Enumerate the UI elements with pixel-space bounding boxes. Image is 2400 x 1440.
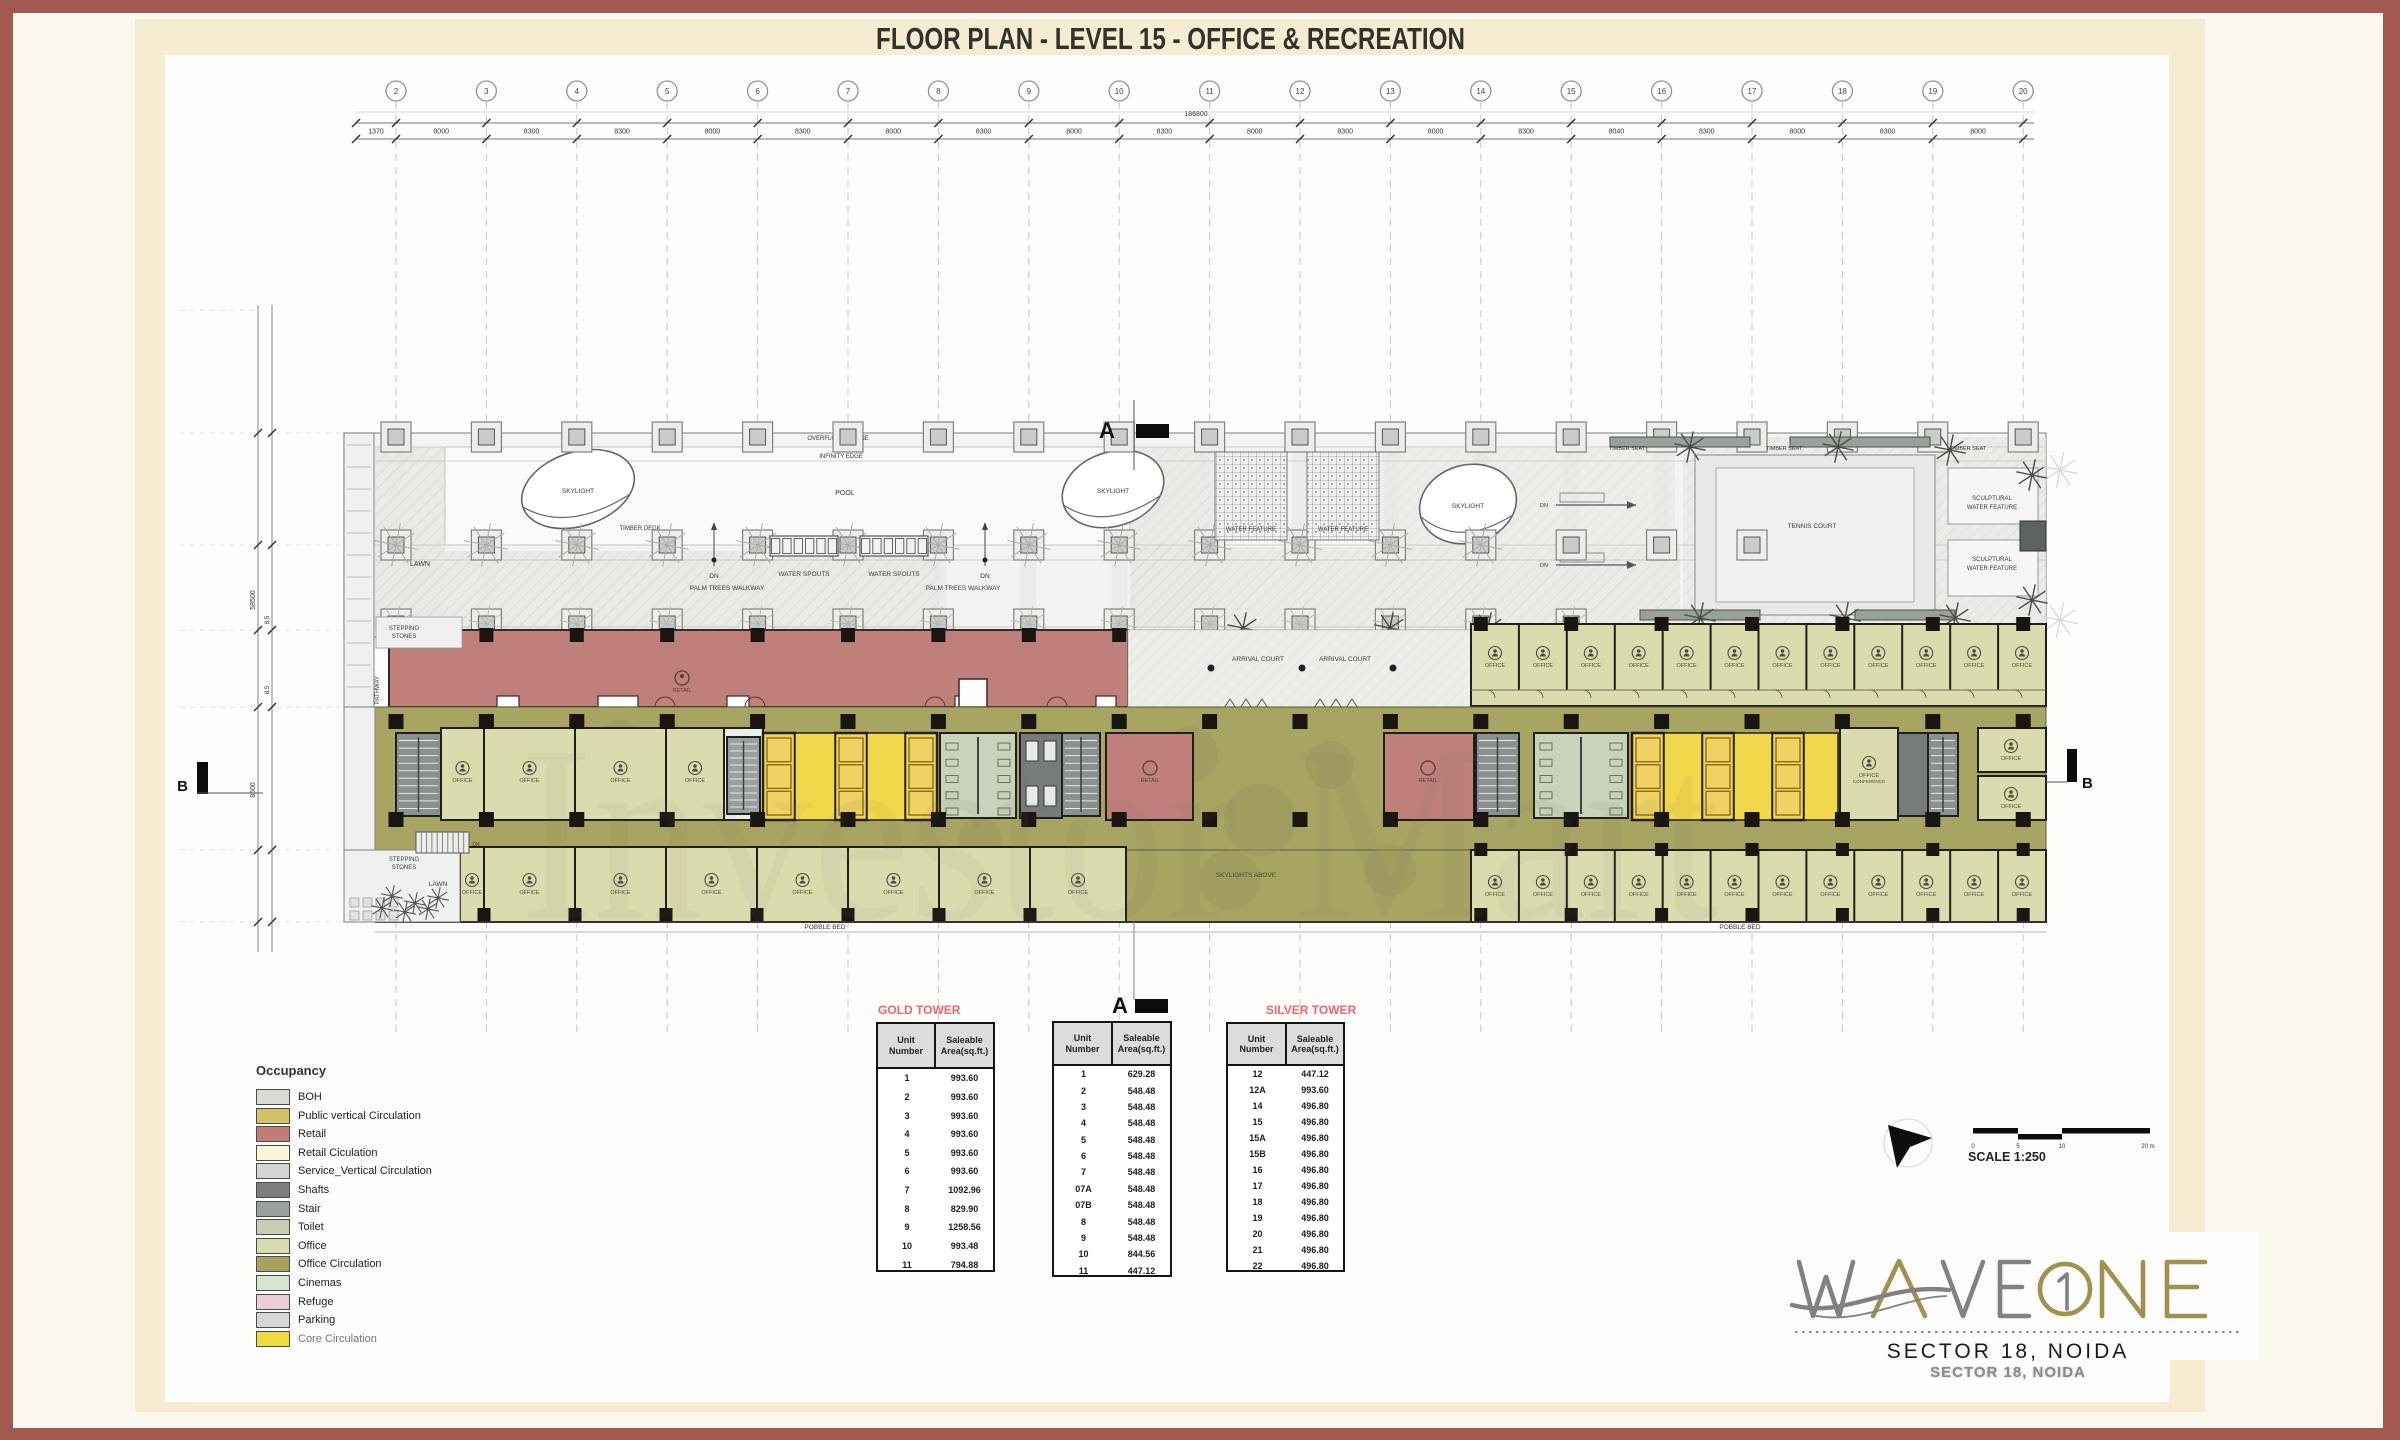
svg-text:2: 2 (394, 87, 399, 96)
svg-text:SCULPTURAL: SCULPTURAL (1972, 557, 2012, 563)
svg-text:OFFICE: OFFICE (1772, 663, 1792, 669)
svg-text:STEPPING: STEPPING (389, 857, 420, 863)
svg-text:OFFICE: OFFICE (1772, 892, 1792, 898)
svg-text:Investor Mart: Investor Mart (520, 693, 1720, 973)
svg-text:OFFICE: OFFICE (1916, 892, 1936, 898)
svg-text:OFFICE: OFFICE (1533, 663, 1553, 669)
svg-text:10: 10 (1115, 87, 1124, 96)
svg-text:SKYLIGHT: SKYLIGHT (1452, 503, 1484, 510)
svg-text:8000: 8000 (1066, 129, 1082, 136)
svg-text:OFFICE: OFFICE (1485, 663, 1505, 669)
svg-text:8300: 8300 (1157, 129, 1173, 136)
svg-text:PALM TREES WALKWAY: PALM TREES WALKWAY (690, 585, 765, 592)
svg-text:OFFICE: OFFICE (1677, 663, 1697, 669)
svg-text:8000: 8000 (433, 129, 449, 136)
svg-text:STEPPING: STEPPING (389, 626, 420, 632)
svg-text:8300: 8300 (1337, 129, 1353, 136)
svg-text:8000: 8000 (1970, 129, 1986, 136)
svg-text:TIMBER SEAT: TIMBER SEAT (1766, 446, 1803, 452)
svg-text:DN: DN (1540, 563, 1548, 569)
svg-text:OFFICE: OFFICE (1724, 892, 1744, 898)
svg-text:B: B (177, 778, 188, 795)
svg-text:10: 10 (2059, 1144, 2066, 1150)
svg-text:PALM TREES WALKWAY: PALM TREES WALKWAY (926, 585, 1001, 592)
svg-text:POOL: POOL (835, 490, 855, 497)
svg-text:8300: 8300 (614, 129, 630, 136)
svg-text:TIMBER SEAT: TIMBER SEAT (1609, 446, 1646, 452)
svg-text:20 m: 20 m (2141, 1144, 2154, 1150)
svg-text:ARRIVAL COURT: ARRIVAL COURT (1232, 656, 1284, 663)
svg-text:8000: 8000 (1247, 129, 1263, 136)
svg-text:OFFICE: OFFICE (452, 778, 472, 784)
svg-text:14: 14 (1476, 87, 1485, 96)
svg-text:11: 11 (1205, 87, 1214, 96)
svg-text:CONFERENCE: CONFERENCE (1853, 779, 1885, 784)
svg-text:STONES: STONES (392, 865, 417, 871)
svg-text:9: 9 (1027, 87, 1032, 96)
svg-text:8300: 8300 (795, 129, 811, 136)
svg-text:1370: 1370 (368, 129, 384, 136)
svg-text:DN: DN (980, 573, 990, 580)
svg-text:A: A (1112, 993, 1128, 1018)
svg-text:8300: 8300 (976, 129, 992, 136)
svg-text:3: 3 (484, 87, 489, 96)
svg-text:8300: 8300 (1880, 129, 1896, 136)
svg-text:15: 15 (1567, 87, 1576, 96)
svg-text:LAWN: LAWN (429, 881, 448, 888)
svg-text:7: 7 (846, 87, 851, 96)
svg-text:OFFICE: OFFICE (1964, 892, 1984, 898)
svg-text:WATER SPOUTS: WATER SPOUTS (778, 571, 830, 578)
svg-text:OFFICE: OFFICE (2012, 892, 2032, 898)
svg-text:OFFICE: OFFICE (1868, 663, 1888, 669)
svg-text:8000: 8000 (1428, 129, 1444, 136)
svg-text:18: 18 (1838, 87, 1847, 96)
svg-text:5: 5 (665, 87, 670, 96)
svg-text:8000: 8000 (1789, 129, 1805, 136)
svg-text:8000: 8000 (885, 129, 901, 136)
svg-text:8300: 8300 (524, 129, 540, 136)
svg-text:OFFICE: OFFICE (2001, 756, 2021, 762)
svg-text:TENNIS COURT: TENNIS COURT (1788, 523, 1837, 530)
svg-text:OFFICE: OFFICE (1964, 663, 1984, 669)
svg-text:OFFICE: OFFICE (1581, 663, 1601, 669)
svg-text:WATER FEATURE: WATER FEATURE (1967, 566, 2017, 572)
svg-text:WATER FEATURE: WATER FEATURE (1967, 505, 2017, 511)
svg-text:16: 16 (1657, 87, 1666, 96)
svg-text:12: 12 (1296, 87, 1305, 96)
svg-text:SCALE 1:250: SCALE 1:250 (1968, 1150, 2046, 1164)
svg-text:8000: 8000 (705, 129, 721, 136)
svg-text:8300: 8300 (1518, 129, 1534, 136)
svg-text:4: 4 (575, 87, 580, 96)
svg-text:8300: 8300 (1699, 129, 1715, 136)
svg-text:STONES: STONES (392, 634, 417, 640)
svg-text:LAWN: LAWN (410, 561, 430, 568)
svg-text:WATER FEATURE: WATER FEATURE (1318, 527, 1368, 533)
svg-text:8.5: 8.5 (265, 615, 271, 624)
svg-text:SCULPTURAL: SCULPTURAL (1972, 496, 2012, 502)
svg-text:58500: 58500 (250, 590, 257, 610)
svg-text:OFFICE: OFFICE (1868, 892, 1888, 898)
svg-text:DN: DN (709, 573, 719, 580)
svg-text:17: 17 (1748, 87, 1757, 96)
svg-text:PATHWAY: PATHWAY (375, 676, 381, 704)
svg-text:WATER SPOUTS: WATER SPOUTS (868, 571, 920, 578)
svg-text:DN: DN (1540, 503, 1548, 509)
svg-text:POBBLE BED: POBBLE BED (1719, 924, 1760, 931)
svg-text:OFFICE: OFFICE (1916, 663, 1936, 669)
svg-text:OFFICE: OFFICE (1820, 663, 1840, 669)
svg-text:OFFICE: OFFICE (2012, 663, 2032, 669)
svg-text:ARRIVAL COURT: ARRIVAL COURT (1319, 656, 1371, 663)
svg-text:OFFICE: OFFICE (1724, 663, 1744, 669)
svg-text:8: 8 (936, 87, 941, 96)
svg-text:SKYLIGHT: SKYLIGHT (562, 488, 594, 495)
svg-text:WATER FEATURE: WATER FEATURE (1226, 527, 1276, 533)
svg-text:OFFICE: OFFICE (1820, 892, 1840, 898)
svg-text:DN: DN (472, 842, 480, 848)
svg-text:8.5: 8.5 (265, 685, 271, 694)
svg-text:INFINITY EDGE: INFINITY EDGE (819, 454, 863, 460)
svg-text:8500: 8500 (250, 782, 257, 798)
svg-text:6: 6 (755, 87, 760, 96)
svg-text:8040: 8040 (1609, 129, 1625, 136)
svg-text:OFFICE: OFFICE (462, 890, 482, 896)
svg-text:OFFICE: OFFICE (1629, 663, 1649, 669)
svg-text:A: A (1099, 418, 1115, 443)
svg-text:19: 19 (1928, 87, 1937, 96)
svg-text:B: B (2082, 775, 2093, 792)
svg-text:OFFICE: OFFICE (2001, 804, 2021, 810)
svg-text:SKYLIGHT: SKYLIGHT (1097, 488, 1129, 495)
svg-text:20: 20 (2019, 87, 2028, 96)
svg-text:13: 13 (1386, 87, 1395, 96)
